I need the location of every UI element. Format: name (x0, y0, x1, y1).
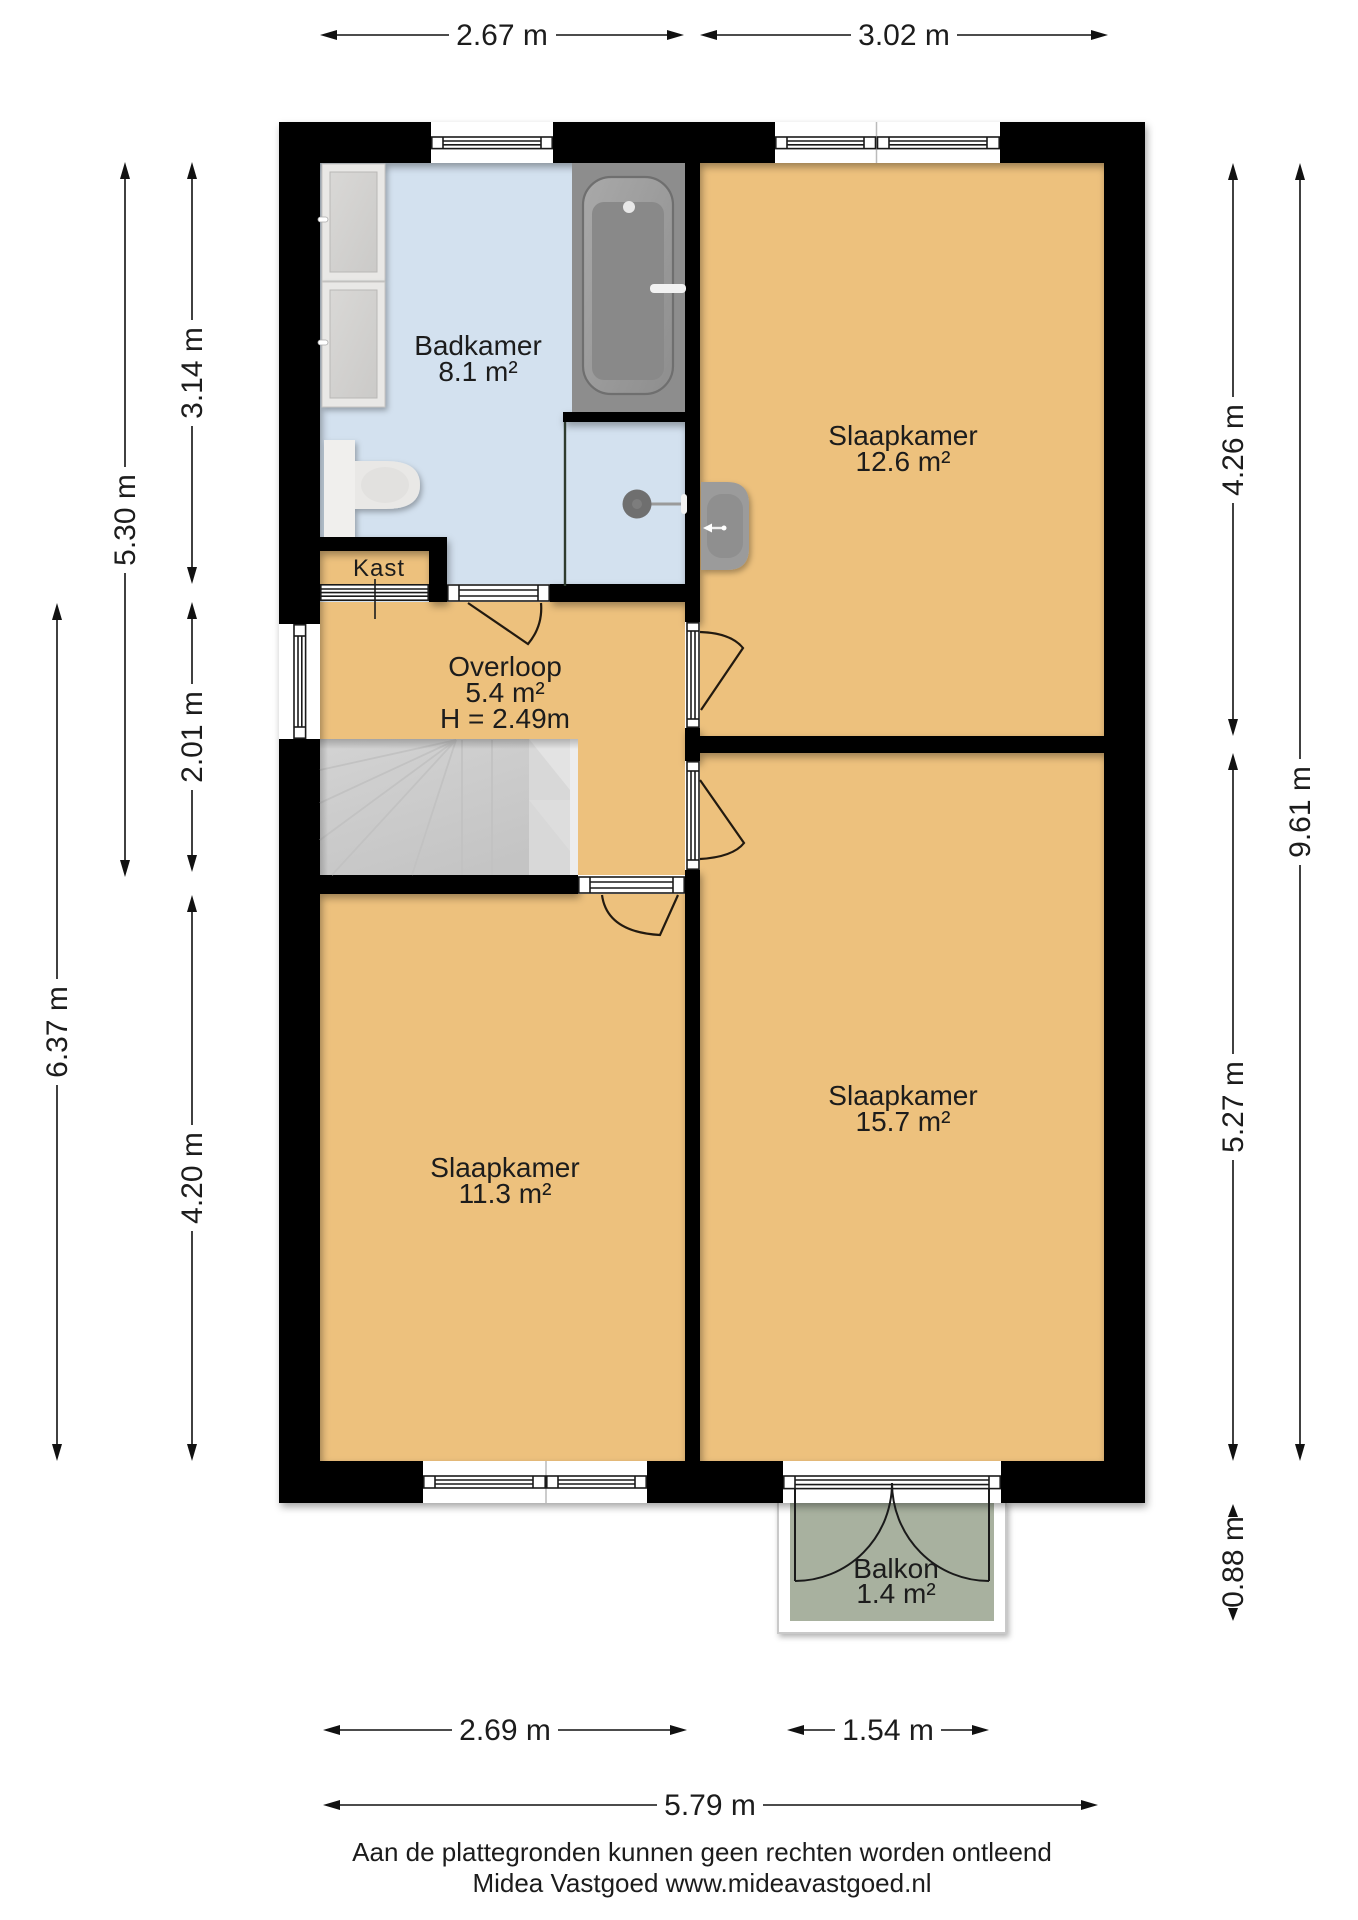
svg-text:0.88 m: 0.88 m (1217, 1516, 1250, 1608)
svg-text:3.02 m: 3.02 m (858, 19, 950, 52)
svg-text:1.4 m²: 1.4 m² (856, 1578, 935, 1609)
svg-text:2.69 m: 2.69 m (459, 1714, 551, 1747)
svg-text:2.01 m: 2.01 m (176, 691, 209, 783)
svg-text:5.27 m: 5.27 m (1217, 1061, 1250, 1153)
svg-text:11.3 m²: 11.3 m² (459, 1178, 552, 1209)
svg-text:1.54 m: 1.54 m (842, 1714, 934, 1747)
svg-text:H = 2.49m: H = 2.49m (440, 703, 570, 734)
svg-text:2.67 m: 2.67 m (456, 19, 548, 52)
svg-text:5.79 m: 5.79 m (664, 1789, 756, 1822)
svg-text:Aan de plattegronden kunnen ge: Aan de plattegronden kunnen geen rechten… (352, 1837, 1052, 1867)
svg-text:4.26 m: 4.26 m (1217, 404, 1250, 496)
svg-text:12.6 m²: 12.6 m² (856, 446, 951, 477)
svg-text:3.14 m: 3.14 m (176, 327, 209, 419)
svg-text:8.1 m²: 8.1 m² (438, 356, 517, 387)
svg-text:5.30 m: 5.30 m (109, 474, 142, 566)
svg-text:15.7 m²: 15.7 m² (856, 1106, 951, 1137)
svg-text:6.37 m: 6.37 m (41, 986, 74, 1078)
svg-text:Kast: Kast (353, 555, 405, 582)
svg-text:9.61 m: 9.61 m (1284, 766, 1317, 858)
svg-text:4.20 m: 4.20 m (176, 1132, 209, 1224)
svg-text:Midea Vastgoed www.mideavastgo: Midea Vastgoed www.mideavastgoed.nl (472, 1868, 931, 1898)
